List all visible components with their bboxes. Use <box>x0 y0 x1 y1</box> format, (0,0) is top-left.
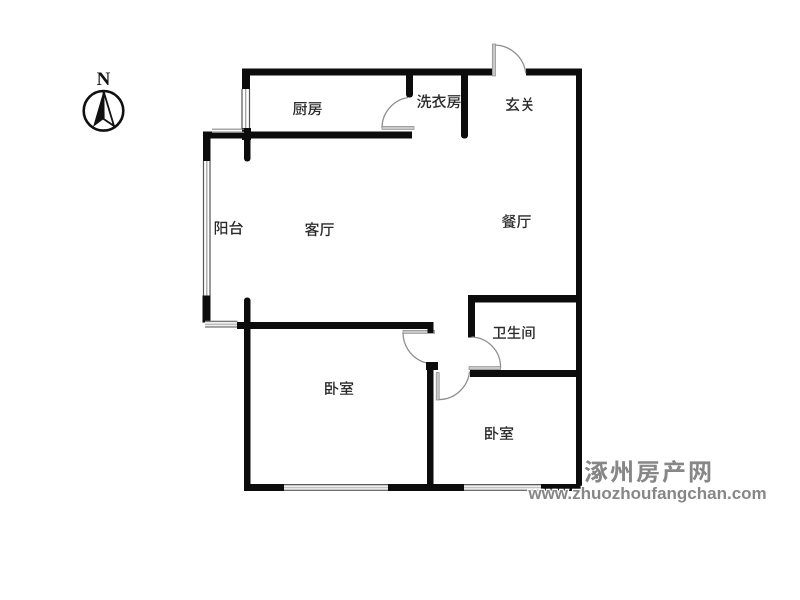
svg-text:N: N <box>97 69 111 90</box>
svg-text:www.zhuozhoufangchan.com: www.zhuozhoufangchan.com <box>527 484 766 503</box>
